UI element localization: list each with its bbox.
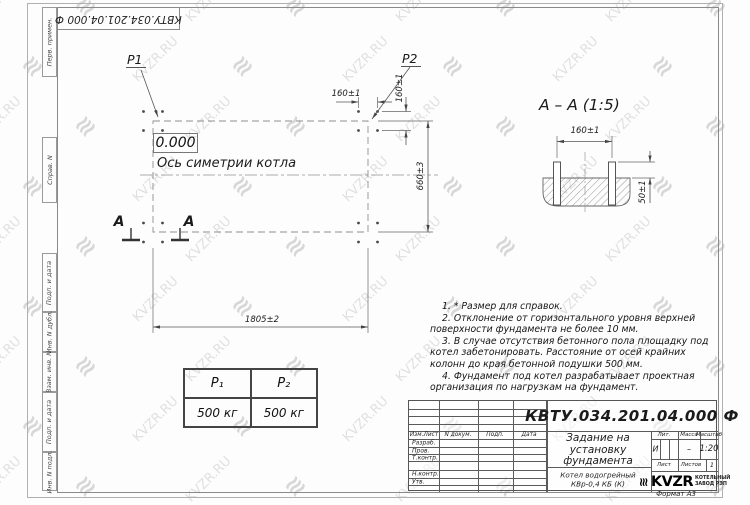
dim-bolt-vertical: 160±1	[395, 74, 405, 103]
note-2: 2. Отклонение от горизонтального уровня …	[430, 313, 720, 336]
titleblock-title-line3: фундамента	[563, 455, 633, 467]
titleblock-scale-value: 1:20	[699, 444, 718, 454]
company-logo: ≋ KVZR КОТЕЛЬНЫЙ ЗАВОД РЭП	[651, 471, 718, 492]
titleblock-row-prov: Пров.	[412, 447, 429, 454]
dim-foundation-length: 1805±2	[245, 315, 279, 325]
titleblock-scale-label: Масштаб	[696, 432, 722, 438]
titleblock-lit-value: И	[653, 445, 659, 454]
titleblock-sheet-label: Лист	[657, 462, 671, 468]
load-table-value-p1: 500 кг	[184, 398, 251, 427]
titleblock-title-line2: установку	[570, 444, 627, 456]
notes-block: 1. * Размер для справок. 2. Отклонение о…	[430, 301, 720, 394]
zero-level-mark: 0.000	[153, 133, 198, 153]
titleblock-row-razrab: Разраб.	[412, 440, 436, 447]
titleblock-product-line2: КВр-0,4 КБ (К)	[571, 480, 625, 489]
section-mark-a-left: А	[114, 214, 125, 230]
titleblock-doc-number: КВТУ.034.201.04.000 Ф	[525, 407, 739, 425]
titleblock-col-podp: Подп.	[486, 432, 504, 438]
titleblock-sheets-value: 1	[710, 461, 714, 469]
note-4: 4. Фундамент под котел разрабатывает про…	[430, 371, 720, 394]
titleblock-product-line1: Котел водогрейный	[560, 471, 635, 480]
dim-foundation-width: 660±3	[416, 162, 426, 191]
load-table-value-p2: 500 кг	[251, 398, 318, 427]
titleblock-sheets-label: Листов	[681, 462, 702, 468]
titleblock-col-n-dokum: N докум.	[445, 432, 472, 438]
zero-level-value: 0.000	[155, 135, 195, 151]
kvzr-logo-mark-icon: ≋	[639, 476, 649, 486]
titleblock-col-data: Дата	[521, 432, 536, 438]
drawing-sheet: { "watermark": { "text": "KVZR.RU", "gly…	[0, 0, 750, 500]
titleblock-title-line1: Задание на	[566, 432, 630, 444]
company-name: КОТЕЛЬНЫЙ ЗАВОД РЭП	[695, 476, 730, 487]
load-point-p1-label: P1	[126, 52, 146, 68]
title-block: КВТУ.034.201.04.000 Ф Изм.Лист N докум. …	[408, 400, 717, 491]
format-label: Формат А3	[656, 490, 696, 498]
section-mark-a-right: А	[184, 214, 195, 230]
kvzr-logo-word: KVZR	[651, 474, 693, 490]
dim-section-bolts: 160±1	[571, 126, 600, 136]
boiler-axis-label: Ось симетрии котла	[157, 156, 296, 171]
titleblock-row-nkontr: Н.контр.	[412, 471, 439, 478]
titleblock-lit-label: Лит.	[658, 432, 671, 438]
dim-bolt-protrusion: 50±1	[638, 180, 648, 203]
company-name-line2: ЗАВОД РЭП	[695, 482, 730, 488]
note-1: 1. * Размер для справок.	[430, 301, 720, 313]
load-point-p2-label: P2	[401, 51, 421, 67]
titleblock-mass-value: –	[687, 445, 691, 454]
dim-bolt-horizontal: 160±1	[332, 89, 361, 99]
titleblock-row-tkontr: Т.контр.	[412, 454, 438, 461]
section-view-title: А – А (1:5)	[539, 96, 620, 114]
load-table: P₁ P₂ 500 кг 500 кг	[183, 368, 318, 428]
load-table-header-p2: P₂	[251, 369, 318, 398]
titleblock-col-izm-list: Изм.Лист	[410, 432, 438, 438]
titleblock-row-utv: Утв.	[412, 478, 425, 485]
load-table-header-p1: P₁	[184, 369, 251, 398]
note-3: 3. В случае отсутствия бетонного пола пл…	[430, 336, 720, 371]
